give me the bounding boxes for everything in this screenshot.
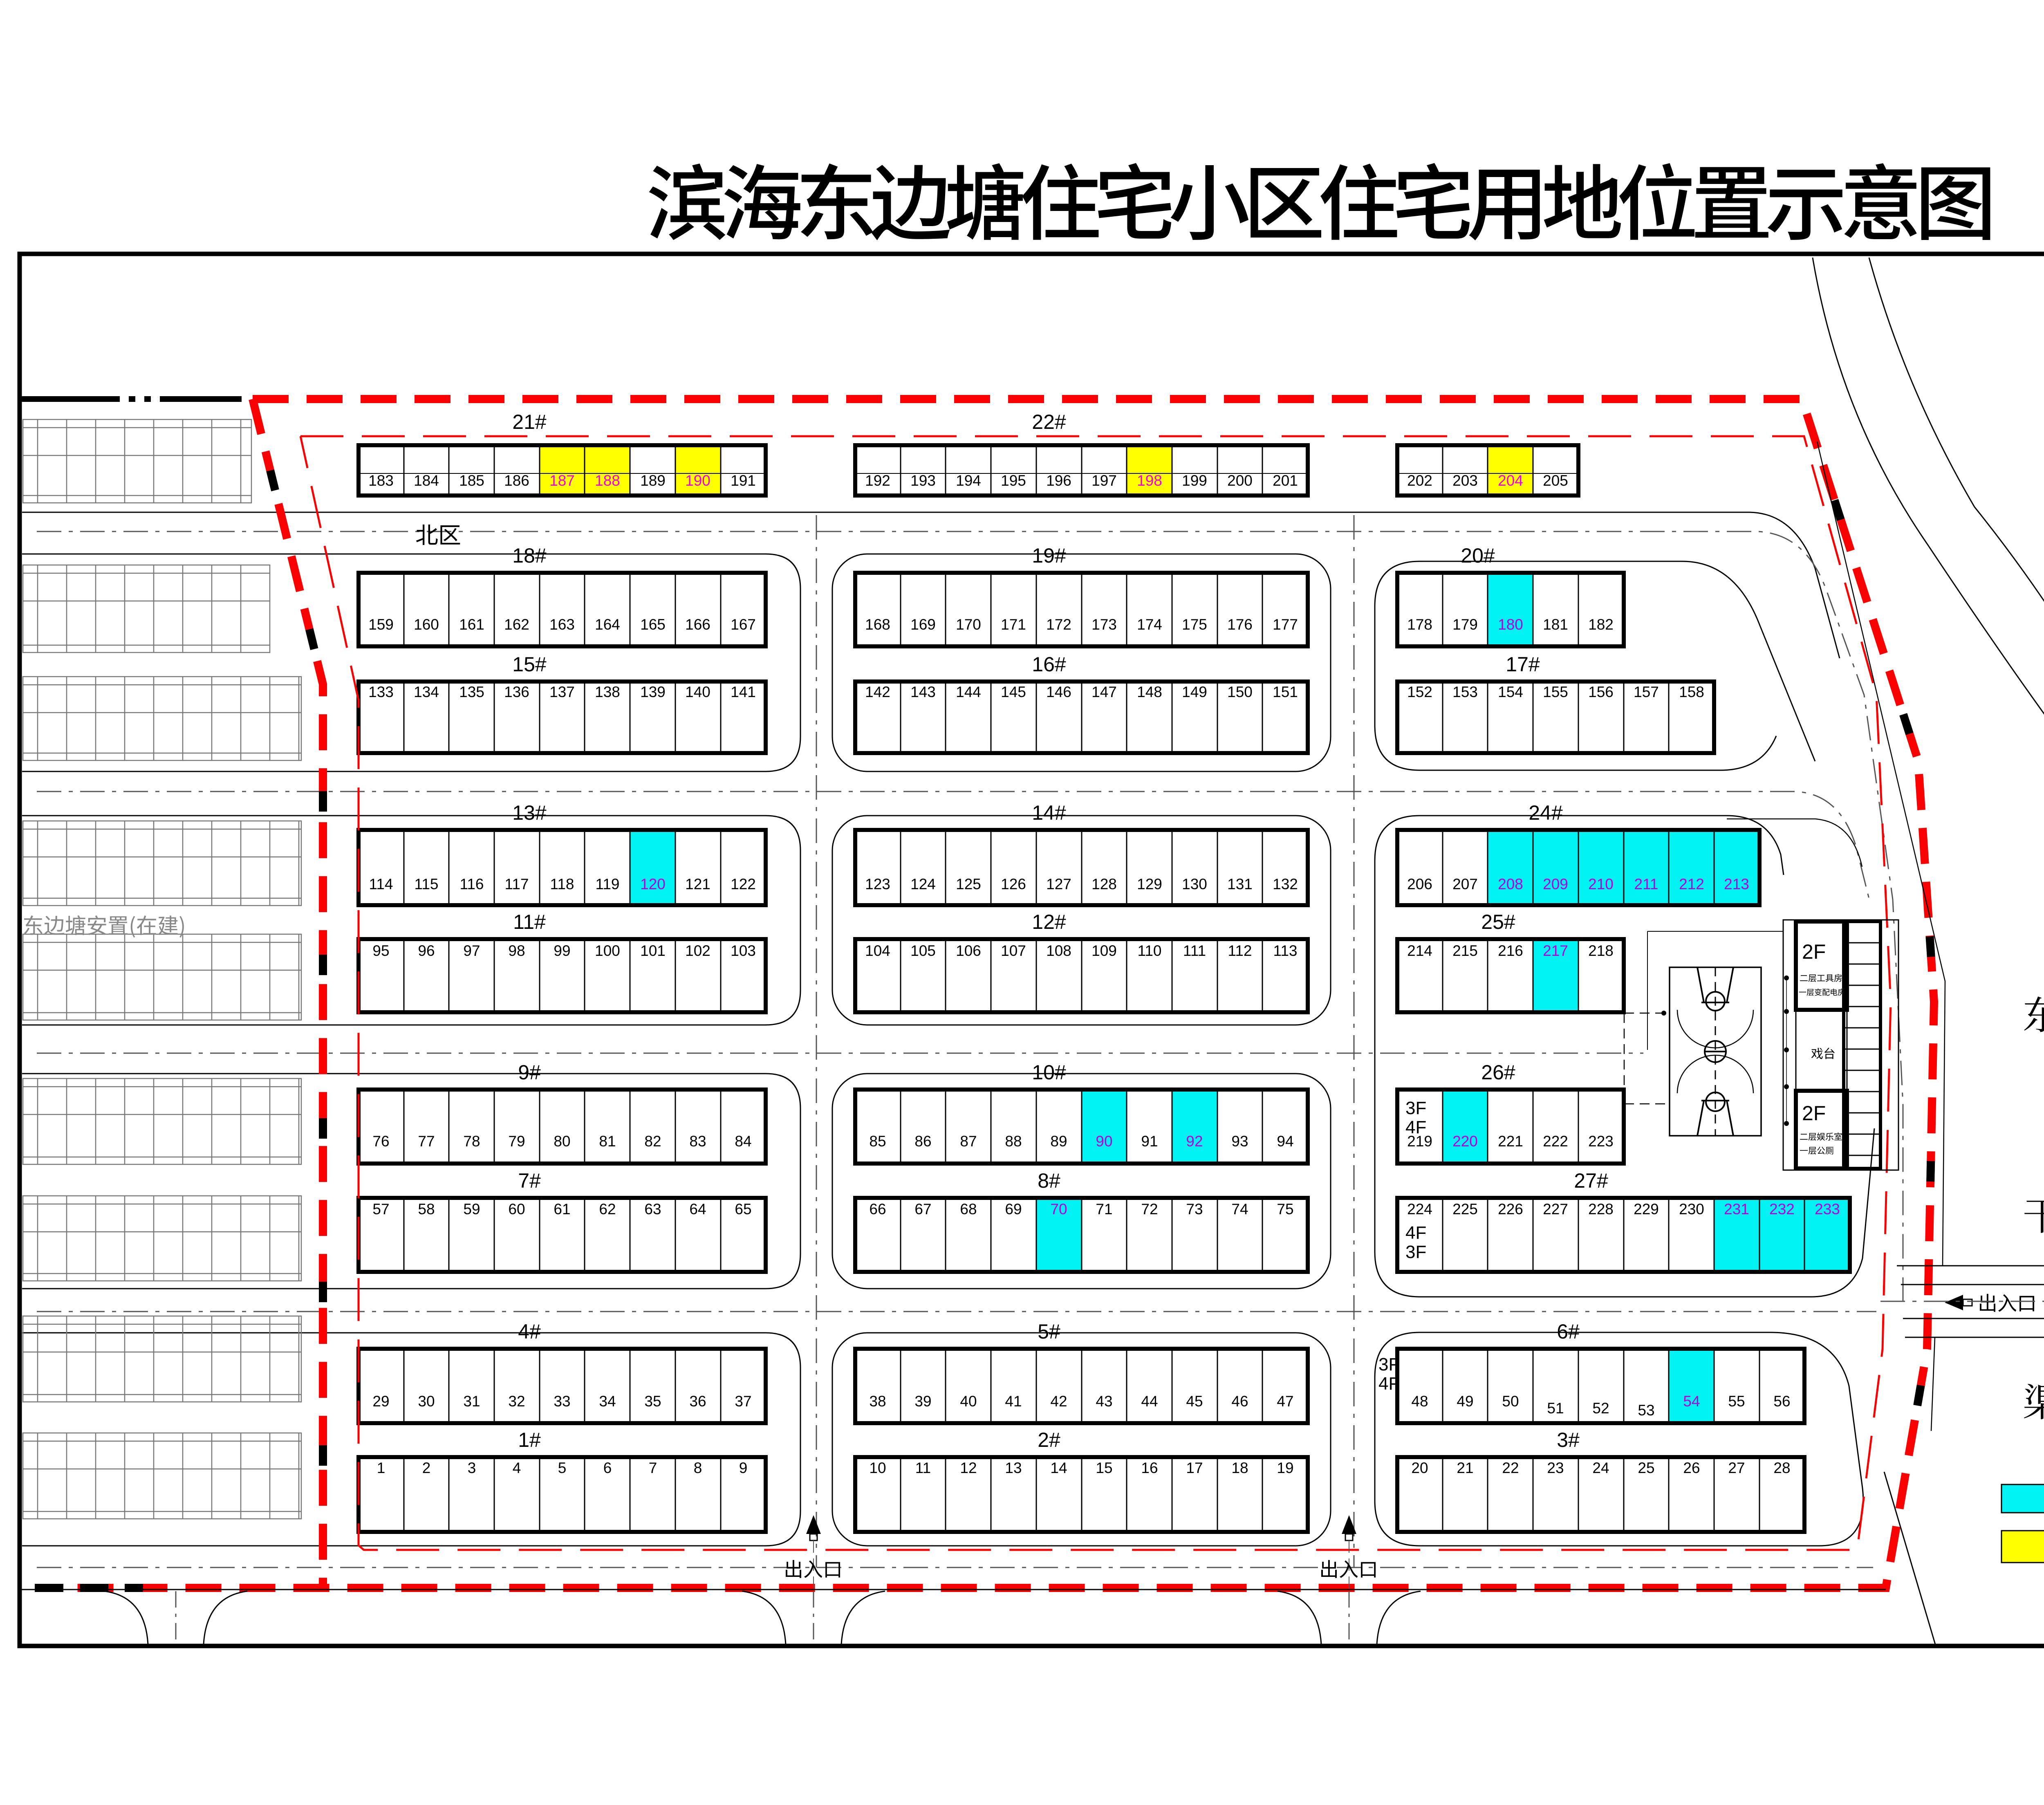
svg-text:112: 112	[1228, 942, 1252, 959]
svg-text:108: 108	[1046, 942, 1071, 959]
svg-text:125: 125	[956, 876, 981, 892]
svg-text:20#: 20#	[1461, 544, 1495, 567]
svg-text:128: 128	[1091, 876, 1117, 892]
svg-text:22: 22	[1502, 1460, 1519, 1476]
svg-text:61: 61	[554, 1201, 570, 1218]
svg-text:177: 177	[1273, 616, 1298, 633]
svg-text:38: 38	[869, 1393, 886, 1410]
svg-text:215: 215	[1452, 942, 1478, 959]
svg-text:121: 121	[685, 876, 710, 892]
svg-text:142: 142	[865, 684, 890, 700]
svg-text:22#: 22#	[1032, 410, 1066, 433]
svg-text:110: 110	[1138, 942, 1162, 959]
svg-text:33: 33	[554, 1393, 570, 1410]
svg-text:206: 206	[1407, 876, 1432, 892]
svg-text:212: 212	[1679, 876, 1704, 892]
svg-text:4F: 4F	[1405, 1117, 1426, 1137]
svg-text:144: 144	[956, 684, 981, 700]
svg-text:14: 14	[1050, 1460, 1067, 1476]
svg-text:127: 127	[1046, 876, 1071, 892]
svg-text:174: 174	[1137, 616, 1162, 633]
svg-text:46: 46	[1231, 1393, 1248, 1410]
svg-text:178: 178	[1407, 616, 1432, 633]
svg-text:13: 13	[1005, 1460, 1022, 1476]
svg-text:213: 213	[1724, 876, 1749, 892]
svg-text:130: 130	[1182, 876, 1207, 892]
svg-text:14#: 14#	[1032, 801, 1066, 824]
svg-text:147: 147	[1091, 684, 1117, 700]
svg-text:140: 140	[685, 684, 710, 700]
svg-text:180: 180	[1498, 616, 1523, 633]
svg-text:36: 36	[689, 1393, 706, 1410]
svg-text:214: 214	[1407, 942, 1432, 959]
svg-text:62: 62	[599, 1201, 616, 1218]
svg-text:54: 54	[1683, 1393, 1700, 1410]
svg-text:82: 82	[644, 1133, 661, 1150]
svg-text:25#: 25#	[1481, 910, 1515, 933]
svg-text:76: 76	[372, 1133, 389, 1150]
svg-text:204: 204	[1498, 472, 1523, 489]
svg-text:17: 17	[1186, 1460, 1203, 1476]
svg-text:133: 133	[368, 684, 394, 700]
svg-text:155: 155	[1543, 684, 1568, 700]
svg-text:64: 64	[689, 1201, 706, 1218]
svg-text:105: 105	[910, 942, 936, 959]
svg-text:151: 151	[1273, 684, 1298, 700]
svg-text:198: 198	[1137, 472, 1162, 489]
svg-text:131: 131	[1227, 876, 1253, 892]
svg-text:6: 6	[603, 1460, 612, 1476]
svg-text:3F: 3F	[1405, 1242, 1426, 1262]
svg-text:203: 203	[1452, 472, 1478, 489]
svg-text:45: 45	[1186, 1393, 1203, 1410]
svg-text:5: 5	[558, 1460, 567, 1476]
svg-text:167: 167	[731, 616, 756, 633]
svg-text:228: 228	[1588, 1201, 1614, 1218]
svg-text:232: 232	[1769, 1201, 1795, 1218]
svg-text:192: 192	[865, 472, 890, 489]
svg-text:208: 208	[1498, 876, 1523, 892]
svg-text:146: 146	[1046, 684, 1071, 700]
svg-text:78: 78	[463, 1133, 480, 1150]
svg-text:98: 98	[508, 942, 525, 959]
svg-text:10: 10	[869, 1460, 886, 1476]
svg-text:97: 97	[463, 942, 480, 959]
svg-text:223: 223	[1588, 1133, 1614, 1150]
svg-text:67: 67	[914, 1201, 931, 1218]
svg-text:20: 20	[1411, 1460, 1428, 1476]
svg-text:58: 58	[418, 1201, 435, 1218]
svg-text:143: 143	[910, 684, 936, 700]
svg-text:117: 117	[505, 876, 529, 892]
svg-text:87: 87	[960, 1133, 977, 1150]
svg-text:138: 138	[595, 684, 620, 700]
svg-text:10#: 10#	[1032, 1061, 1066, 1084]
svg-text:21: 21	[1457, 1460, 1473, 1476]
svg-text:135: 135	[459, 684, 484, 700]
svg-text:188: 188	[595, 472, 620, 489]
svg-text:231: 231	[1724, 1201, 1749, 1218]
svg-text:18#: 18#	[512, 544, 547, 567]
svg-text:3F: 3F	[1405, 1098, 1426, 1118]
svg-text:73: 73	[1186, 1201, 1203, 1218]
svg-text:129: 129	[1137, 876, 1162, 892]
svg-text:13#: 13#	[512, 801, 547, 824]
svg-text:207: 207	[1452, 876, 1478, 892]
svg-text:79: 79	[508, 1133, 525, 1150]
svg-text:39: 39	[914, 1393, 931, 1410]
svg-text:28: 28	[1773, 1460, 1790, 1476]
svg-text:109: 109	[1091, 942, 1117, 959]
svg-text:122: 122	[731, 876, 756, 892]
svg-text:7: 7	[649, 1460, 657, 1476]
svg-text:47: 47	[1277, 1393, 1293, 1410]
svg-text:24#: 24#	[1529, 801, 1563, 824]
svg-text:66: 66	[869, 1201, 886, 1218]
svg-text:69: 69	[1005, 1201, 1022, 1218]
svg-text:193: 193	[910, 472, 936, 489]
svg-text:2: 2	[422, 1460, 431, 1476]
svg-text:95: 95	[372, 942, 389, 959]
svg-text:209: 209	[1543, 876, 1568, 892]
svg-text:71: 71	[1096, 1201, 1112, 1218]
svg-text:132: 132	[1273, 876, 1298, 892]
svg-text:154: 154	[1498, 684, 1523, 700]
svg-text:172: 172	[1046, 616, 1071, 633]
svg-text:91: 91	[1141, 1133, 1158, 1150]
svg-text:102: 102	[685, 942, 710, 959]
svg-text:27#: 27#	[1574, 1169, 1608, 1192]
svg-text:220: 220	[1452, 1133, 1478, 1150]
svg-text:189: 189	[640, 472, 666, 489]
svg-text:120: 120	[640, 876, 666, 892]
svg-text:43: 43	[1096, 1393, 1112, 1410]
svg-text:16: 16	[1141, 1460, 1158, 1476]
svg-text:99: 99	[554, 942, 570, 959]
svg-text:4: 4	[513, 1460, 521, 1476]
svg-text:199: 199	[1182, 472, 1207, 489]
svg-text:141: 141	[731, 684, 756, 700]
svg-text:19#: 19#	[1032, 544, 1066, 567]
svg-text:186: 186	[504, 472, 529, 489]
svg-text:217: 217	[1543, 942, 1568, 959]
svg-text:12: 12	[960, 1460, 977, 1476]
svg-text:218: 218	[1588, 942, 1614, 959]
svg-text:157: 157	[1634, 684, 1659, 700]
svg-text:19: 19	[1277, 1460, 1293, 1476]
svg-text:32: 32	[508, 1393, 525, 1410]
svg-text:9#: 9#	[518, 1061, 541, 1084]
svg-text:191: 191	[731, 472, 756, 489]
svg-text:171: 171	[1001, 616, 1026, 633]
svg-text:68: 68	[960, 1201, 977, 1218]
svg-text:21#: 21#	[512, 410, 547, 433]
svg-text:183: 183	[368, 472, 394, 489]
svg-text:1: 1	[377, 1460, 385, 1476]
svg-text:80: 80	[554, 1133, 570, 1150]
svg-text:74: 74	[1231, 1201, 1248, 1218]
svg-text:211: 211	[1634, 876, 1659, 892]
svg-text:175: 175	[1182, 616, 1207, 633]
svg-text:159: 159	[368, 616, 394, 633]
svg-text:15: 15	[1096, 1460, 1112, 1476]
svg-text:27: 27	[1728, 1460, 1745, 1476]
svg-text:230: 230	[1679, 1201, 1704, 1218]
svg-text:106: 106	[956, 942, 981, 959]
svg-text:85: 85	[869, 1133, 886, 1150]
svg-text:104: 104	[865, 942, 890, 959]
svg-text:224: 224	[1407, 1201, 1432, 1218]
svg-text:233: 233	[1815, 1201, 1840, 1218]
svg-text:165: 165	[640, 616, 666, 633]
svg-text:40: 40	[960, 1393, 977, 1410]
svg-text:24: 24	[1592, 1460, 1609, 1476]
svg-text:162: 162	[504, 616, 529, 633]
svg-text:89: 89	[1050, 1133, 1067, 1150]
svg-text:57: 57	[372, 1201, 389, 1218]
svg-text:11#: 11#	[513, 910, 546, 933]
svg-text:12#: 12#	[1032, 910, 1066, 933]
svg-text:7#: 7#	[518, 1169, 541, 1192]
svg-text:200: 200	[1227, 472, 1253, 489]
svg-text:101: 101	[640, 942, 666, 959]
svg-text:124: 124	[910, 876, 936, 892]
svg-text:4#: 4#	[518, 1320, 541, 1343]
svg-text:195: 195	[1001, 472, 1026, 489]
svg-text:72: 72	[1141, 1201, 1158, 1218]
svg-text:194: 194	[956, 472, 981, 489]
svg-text:34: 34	[599, 1393, 616, 1410]
svg-text:8#: 8#	[1038, 1169, 1060, 1192]
svg-text:173: 173	[1091, 616, 1117, 633]
svg-text:75: 75	[1277, 1201, 1293, 1218]
svg-text:221: 221	[1498, 1133, 1523, 1150]
svg-text:92: 92	[1186, 1133, 1203, 1150]
svg-text:137: 137	[549, 684, 575, 700]
svg-text:60: 60	[508, 1201, 525, 1218]
svg-text:3F: 3F	[1378, 1354, 1399, 1374]
svg-text:3#: 3#	[1557, 1428, 1580, 1451]
svg-text:16#: 16#	[1032, 653, 1066, 676]
svg-text:44: 44	[1141, 1393, 1158, 1410]
svg-text:52: 52	[1592, 1400, 1609, 1417]
svg-text:156: 156	[1588, 684, 1614, 700]
svg-text:2#: 2#	[1038, 1428, 1060, 1451]
svg-text:145: 145	[1001, 684, 1026, 700]
svg-text:2F: 2F	[1802, 1102, 1826, 1125]
svg-text:50: 50	[1502, 1393, 1519, 1410]
svg-text:158: 158	[1679, 684, 1704, 700]
svg-text:1#: 1#	[518, 1428, 541, 1451]
svg-text:160: 160	[414, 616, 439, 633]
svg-text:150: 150	[1227, 684, 1253, 700]
svg-text:161: 161	[459, 616, 484, 633]
svg-text:111: 111	[1183, 942, 1206, 959]
svg-text:205: 205	[1543, 472, 1568, 489]
svg-text:59: 59	[463, 1201, 480, 1218]
svg-text:26: 26	[1683, 1460, 1700, 1476]
svg-text:170: 170	[956, 616, 981, 633]
svg-text:202: 202	[1407, 472, 1432, 489]
svg-text:149: 149	[1182, 684, 1207, 700]
svg-text:185: 185	[459, 472, 484, 489]
svg-text:201: 201	[1273, 472, 1298, 489]
svg-text:152: 152	[1407, 684, 1432, 700]
svg-text:86: 86	[914, 1133, 931, 1150]
svg-text:93: 93	[1231, 1133, 1248, 1150]
svg-text:210: 210	[1588, 876, 1614, 892]
svg-text:176: 176	[1227, 616, 1253, 633]
svg-text:49: 49	[1457, 1393, 1473, 1410]
svg-text:9: 9	[739, 1460, 748, 1476]
svg-text:181: 181	[1543, 616, 1568, 633]
svg-text:216: 216	[1498, 942, 1523, 959]
svg-text:65: 65	[735, 1201, 751, 1218]
svg-text:63: 63	[644, 1201, 661, 1218]
svg-text:53: 53	[1638, 1402, 1654, 1419]
svg-text:168: 168	[865, 616, 890, 633]
svg-text:118: 118	[550, 876, 574, 892]
svg-text:18: 18	[1231, 1460, 1248, 1476]
svg-text:119: 119	[596, 876, 620, 892]
svg-text:169: 169	[910, 616, 936, 633]
svg-text:4F: 4F	[1378, 1374, 1399, 1394]
svg-text:35: 35	[644, 1393, 661, 1410]
svg-text:70: 70	[1050, 1201, 1067, 1218]
svg-text:222: 222	[1543, 1133, 1568, 1150]
svg-text:153: 153	[1452, 684, 1478, 700]
svg-text:48: 48	[1411, 1393, 1428, 1410]
svg-text:84: 84	[735, 1133, 751, 1150]
svg-text:100: 100	[595, 942, 620, 959]
svg-text:4F: 4F	[1405, 1223, 1426, 1243]
svg-text:139: 139	[640, 684, 666, 700]
svg-text:5#: 5#	[1038, 1320, 1060, 1343]
svg-text:163: 163	[549, 616, 575, 633]
svg-text:29: 29	[372, 1393, 389, 1410]
svg-text:115: 115	[415, 876, 439, 892]
svg-text:96: 96	[418, 942, 435, 959]
svg-text:190: 190	[685, 472, 710, 489]
svg-text:196: 196	[1046, 472, 1071, 489]
svg-text:148: 148	[1137, 684, 1162, 700]
svg-text:42: 42	[1050, 1393, 1067, 1410]
svg-text:17#: 17#	[1506, 653, 1540, 676]
svg-text:182: 182	[1588, 616, 1614, 633]
svg-text:179: 179	[1452, 616, 1478, 633]
svg-text:227: 227	[1543, 1201, 1568, 1218]
svg-text:30: 30	[418, 1393, 435, 1410]
svg-text:31: 31	[463, 1393, 480, 1410]
svg-text:2F: 2F	[1802, 940, 1826, 963]
svg-text:134: 134	[414, 684, 439, 700]
svg-text:123: 123	[865, 876, 890, 892]
svg-text:8: 8	[694, 1460, 702, 1476]
svg-text:187: 187	[549, 472, 575, 489]
svg-text:197: 197	[1091, 472, 1117, 489]
svg-text:166: 166	[685, 616, 710, 633]
svg-text:23: 23	[1547, 1460, 1564, 1476]
svg-text:94: 94	[1277, 1133, 1293, 1150]
svg-text:55: 55	[1728, 1393, 1745, 1410]
svg-text:41: 41	[1005, 1393, 1022, 1410]
svg-text:126: 126	[1001, 876, 1026, 892]
svg-text:6#: 6#	[1557, 1320, 1580, 1343]
svg-text:51: 51	[1547, 1400, 1564, 1417]
svg-text:15#: 15#	[512, 653, 547, 676]
svg-text:164: 164	[595, 616, 620, 633]
svg-text:107: 107	[1001, 942, 1026, 959]
svg-text:113: 113	[1273, 942, 1298, 959]
svg-text:116: 116	[460, 876, 484, 892]
svg-text:184: 184	[414, 472, 439, 489]
svg-text:90: 90	[1096, 1133, 1112, 1150]
svg-text:37: 37	[735, 1393, 751, 1410]
svg-text:26#: 26#	[1481, 1061, 1515, 1084]
svg-text:56: 56	[1773, 1393, 1790, 1410]
svg-text:11: 11	[915, 1460, 931, 1476]
svg-text:226: 226	[1498, 1201, 1523, 1218]
svg-text:136: 136	[504, 684, 529, 700]
svg-text:81: 81	[599, 1133, 616, 1150]
svg-text:103: 103	[731, 942, 756, 959]
svg-text:114: 114	[369, 876, 393, 892]
svg-text:229: 229	[1634, 1201, 1659, 1218]
svg-text:83: 83	[689, 1133, 706, 1150]
svg-text:25: 25	[1638, 1460, 1654, 1476]
svg-text:225: 225	[1452, 1201, 1478, 1218]
svg-text:77: 77	[418, 1133, 435, 1150]
svg-text:3: 3	[468, 1460, 476, 1476]
svg-text:88: 88	[1005, 1133, 1022, 1150]
